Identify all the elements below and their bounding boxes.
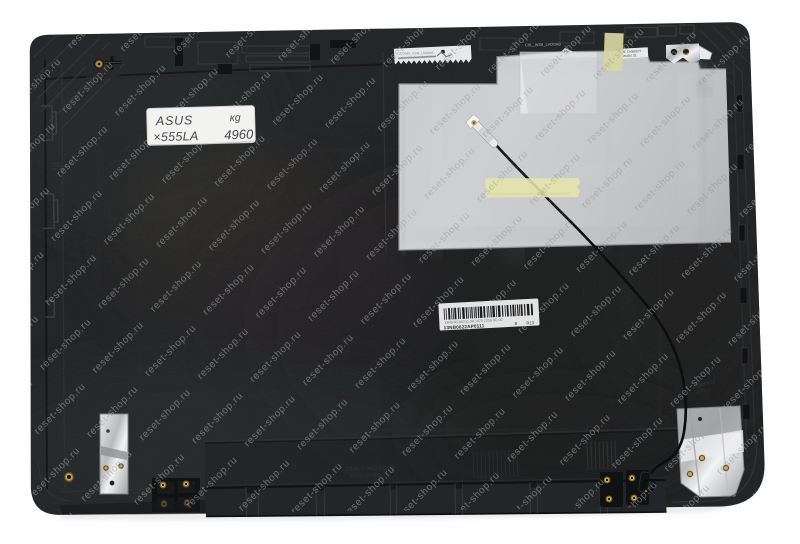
svg-text:B: B xyxy=(514,321,517,326)
svg-text:кg: кg xyxy=(230,112,241,124)
svg-text:R13: R13 xyxy=(526,320,535,325)
svg-text:×555LA: ×555LA xyxy=(153,129,199,144)
svg-text:4960: 4960 xyxy=(224,127,254,143)
svg-text:ASUS: ASUS xyxy=(155,113,194,128)
